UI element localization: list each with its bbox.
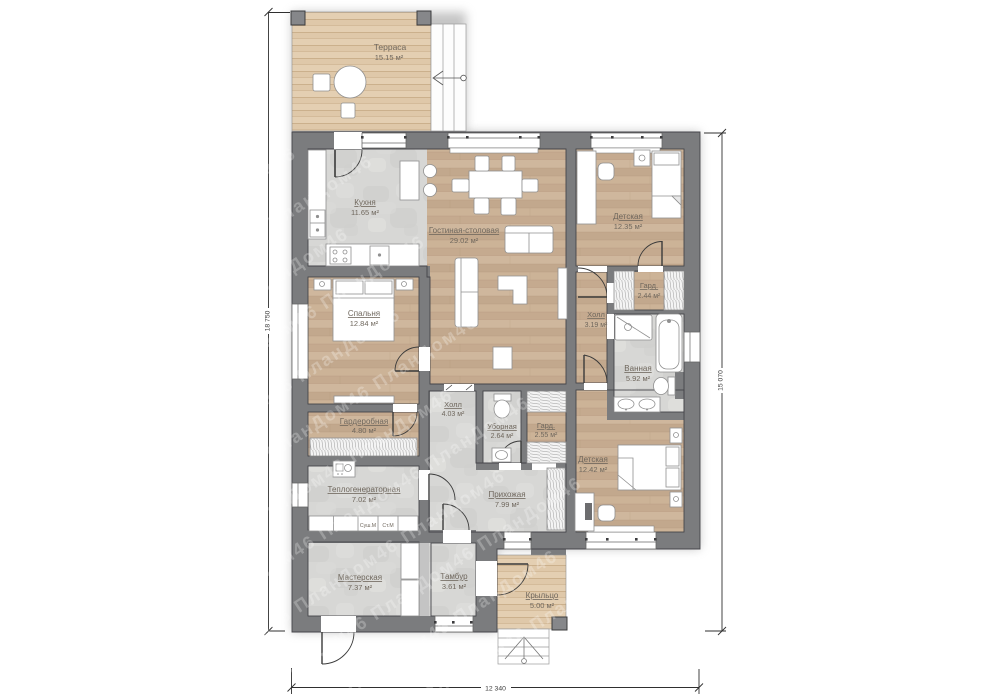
- svg-text:Крыльцо: Крыльцо: [526, 591, 559, 600]
- svg-text:3.61 м²: 3.61 м²: [442, 582, 467, 591]
- svg-text:11.65 м²: 11.65 м²: [351, 208, 379, 217]
- svg-text:29.02 м²: 29.02 м²: [450, 236, 479, 245]
- svg-text:Кухня: Кухня: [354, 198, 375, 207]
- svg-text:Гард.: Гард.: [640, 281, 658, 290]
- svg-text:Холл: Холл: [587, 310, 605, 319]
- svg-text:Гардеробная: Гардеробная: [340, 417, 388, 426]
- svg-text:2.64 м²: 2.64 м²: [491, 433, 514, 440]
- svg-text:Детская: Детская: [578, 455, 608, 464]
- svg-text:15.15 м²: 15.15 м²: [375, 53, 404, 62]
- svg-text:2.55 м²: 2.55 м²: [535, 432, 558, 439]
- svg-text:Детская: Детская: [613, 212, 643, 221]
- svg-text:3.19 м²: 3.19 м²: [585, 322, 608, 329]
- svg-text:15 070: 15 070: [718, 370, 725, 391]
- svg-text:2.44 м²: 2.44 м²: [638, 293, 661, 300]
- svg-text:Гостиная-столовая: Гостиная-столовая: [429, 226, 499, 235]
- svg-text:12 340: 12 340: [485, 685, 506, 692]
- svg-text:4.03 м²: 4.03 м²: [442, 411, 465, 418]
- svg-text:Ст.М: Ст.М: [382, 523, 393, 529]
- svg-text:Терраса: Терраса: [374, 42, 407, 52]
- svg-text:7.99 м²: 7.99 м²: [495, 500, 520, 509]
- svg-text:Гард.: Гард.: [537, 421, 555, 430]
- svg-text:12.35 м²: 12.35 м²: [614, 222, 643, 231]
- svg-text:7.37 м²: 7.37 м²: [348, 583, 373, 592]
- svg-text:Ванная: Ванная: [624, 364, 651, 373]
- svg-text:5.92 м²: 5.92 м²: [626, 374, 651, 383]
- svg-text:12.42 м²: 12.42 м²: [579, 465, 608, 474]
- svg-text:Суш.М: Суш.М: [360, 523, 376, 529]
- svg-text:Прихожая: Прихожая: [488, 490, 525, 499]
